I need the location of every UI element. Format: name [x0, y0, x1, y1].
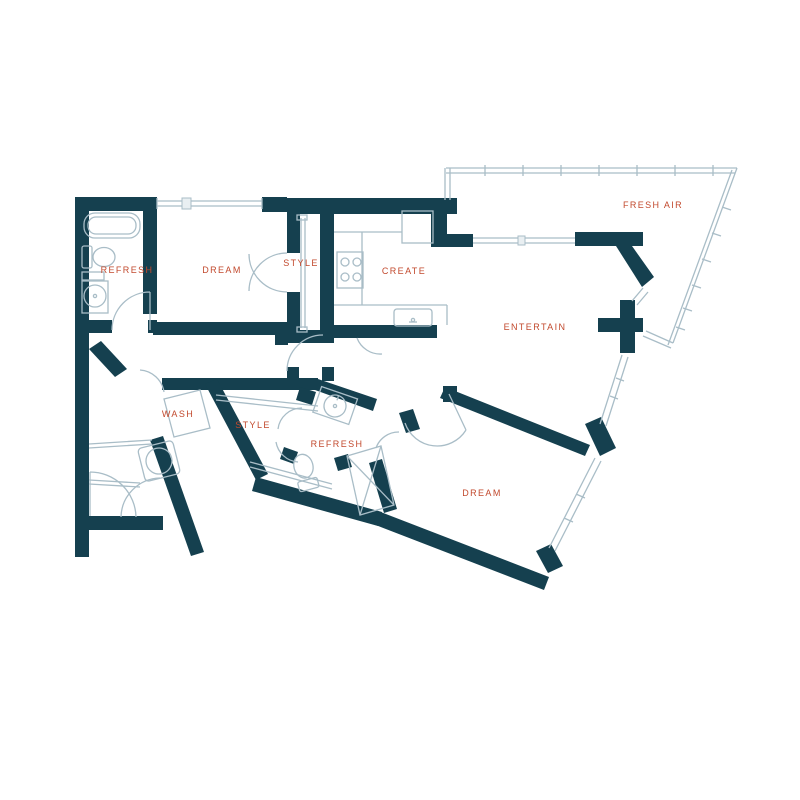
- sliding-door-handle: [518, 236, 525, 245]
- door-swing-dream-upper-closet: [249, 253, 287, 292]
- balcony-railing-icon: [445, 165, 737, 348]
- room-label-style-lower: STYLE: [235, 420, 271, 430]
- window-dream-upper: [157, 198, 262, 209]
- wall-upper-block: [89, 197, 473, 381]
- wall-dream-tl-pier: [443, 386, 457, 402]
- window-dream-lower-band: [549, 458, 601, 551]
- kitchen-sink-icon: [394, 309, 432, 326]
- exterior-and-interior-walls: [75, 197, 654, 590]
- window-mullion: [182, 198, 191, 209]
- door-swing-kitchen: [357, 338, 382, 354]
- wall-angled-ne: [616, 246, 654, 287]
- room-label-dream-lower: DREAM: [462, 488, 502, 498]
- room-label-entertain: ENTERTAIN: [504, 322, 567, 332]
- wall-corner-chamfer: [89, 341, 127, 377]
- kitchen-counter: [334, 232, 447, 325]
- door-swing-wash: [140, 370, 164, 392]
- wall-bottom-diag-b: [373, 511, 549, 590]
- room-label-dream-upper: DREAM: [202, 265, 242, 275]
- room-label-refresh-lower: REFRESH: [311, 439, 364, 449]
- door-swing-entry: [90, 472, 160, 517]
- room-label-refresh-upper: REFRESH: [101, 265, 154, 275]
- room-label-create: CREATE: [382, 266, 426, 276]
- room-label-wash: WASH: [162, 409, 194, 419]
- floor-plan-page: REFRESH DREAM STYLE CREATE ENTERTAIN FRE…: [0, 0, 800, 800]
- door-swing-hall: [376, 432, 399, 448]
- refrigerator-icon: [402, 211, 433, 243]
- toilet-lower-icon: [291, 452, 320, 492]
- room-label-style-upper: STYLE: [283, 258, 319, 268]
- range-stove-icon: [337, 252, 363, 288]
- bathtub-icon: [84, 213, 140, 238]
- wall-stub-hall: [399, 409, 420, 433]
- floor-plan-canvas: REFRESH DREAM STYLE CREATE ENTERTAIN FRE…: [0, 0, 800, 800]
- wall-steep-entry: [150, 436, 204, 556]
- window-east-band: [600, 355, 628, 426]
- room-label-fresh-air: FRESH AIR: [623, 200, 683, 210]
- wall-dream-pier-bottom: [536, 544, 563, 573]
